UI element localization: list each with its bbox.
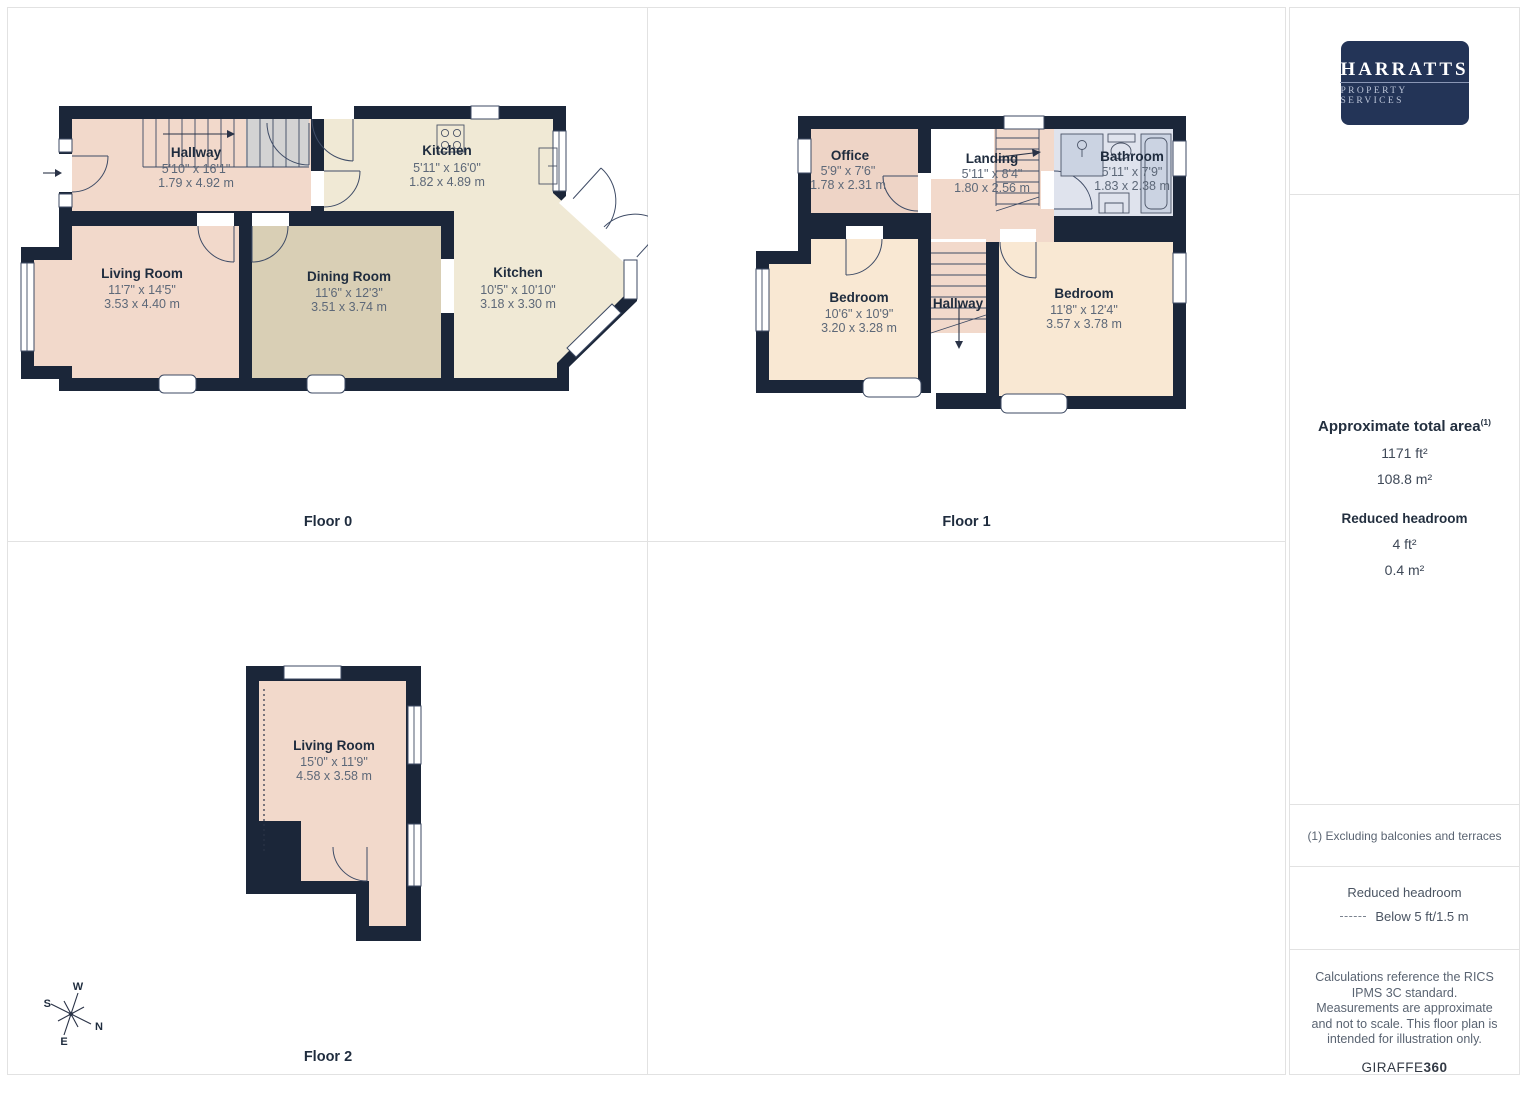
compass: W S N E bbox=[44, 981, 103, 1048]
reduced-headroom-ft: 4 ft² bbox=[1290, 536, 1519, 552]
room-dim-ft: 5'9" x 7'6" bbox=[821, 164, 876, 178]
room-label: Living Room bbox=[293, 738, 375, 753]
room-label: Hallway bbox=[171, 145, 222, 160]
total-area-title-text: Approximate total area bbox=[1318, 418, 1481, 435]
room-dim-ft: 5'11" x 16'0" bbox=[413, 161, 481, 175]
compass-east: E bbox=[60, 1036, 67, 1048]
room-dim-m: 1.78 x 2.31 m bbox=[810, 178, 886, 192]
room-dim-m: 1.80 x 2.56 m bbox=[954, 181, 1030, 195]
room-label: Kitchen bbox=[422, 143, 472, 158]
floor-2-plan: Living Room 15'0" x 11'9" 4.58 x 3.58 m … bbox=[8, 542, 648, 1074]
room-dim-m: 1.82 x 4.89 m bbox=[409, 175, 485, 189]
harratts-logo: HARRATTS PROPERTY SERVICES bbox=[1341, 41, 1469, 125]
room-dim-m: 3.18 x 3.30 m bbox=[480, 297, 556, 311]
total-area-title: Approximate total area(1) bbox=[1290, 417, 1519, 435]
dashed-line-icon bbox=[1340, 916, 1366, 917]
floor-0-plan: Hallway 5'10" x 16'1" 1.79 x 4.92 m Kitc… bbox=[8, 8, 648, 542]
area-section: Approximate total area(1) 1171 ft² 108.8… bbox=[1290, 194, 1519, 804]
disclaimer-section: Calculations reference the RICS IPMS 3C … bbox=[1290, 949, 1519, 1107]
disclaimer-text: Calculations reference the RICS IPMS 3C … bbox=[1311, 970, 1499, 1048]
floorplan-page: { "brand": { "logo_line1": "HARRATTS", "… bbox=[0, 0, 1527, 1080]
room-dim-ft: 10'6" x 10'9" bbox=[825, 307, 894, 321]
room-dim-ft: 5'11" x 8'4" bbox=[962, 167, 1023, 181]
footnote-section: (1) Excluding balconies and terraces bbox=[1290, 804, 1519, 866]
room-dim-m: 1.79 x 4.92 m bbox=[158, 176, 234, 190]
room-label: Dining Room bbox=[307, 269, 391, 284]
room-dim-ft: 10'5" x 10'10" bbox=[480, 283, 556, 297]
floor-1-label: Floor 1 bbox=[648, 514, 1285, 534]
room-dim-ft: 15'0" x 11'9" bbox=[300, 755, 368, 769]
floor-0-label: Floor 0 bbox=[8, 514, 648, 534]
room-dim-ft: 11'6" x 12'3" bbox=[315, 286, 383, 300]
room-dim-m: 3.57 x 3.78 m bbox=[1046, 317, 1122, 331]
room-dim-m: 3.53 x 4.40 m bbox=[104, 297, 180, 311]
room-label: Hallway bbox=[933, 296, 984, 311]
floorplan-grid: Hallway 5'10" x 16'1" 1.79 x 4.92 m Kitc… bbox=[7, 7, 1286, 1075]
legend-section: Reduced headroom Below 5 ft/1.5 m bbox=[1290, 866, 1519, 949]
total-area-m: 108.8 m² bbox=[1290, 471, 1519, 487]
logo-section: HARRATTS PROPERTY SERVICES bbox=[1290, 41, 1519, 194]
compass-west: W bbox=[73, 981, 84, 993]
room-label: Bedroom bbox=[829, 290, 888, 305]
legend-title: Reduced headroom bbox=[1290, 885, 1519, 900]
room-label: Office bbox=[831, 148, 870, 163]
room-dim-m: 3.51 x 3.74 m bbox=[311, 300, 387, 314]
total-area-ft: 1171 ft² bbox=[1290, 445, 1519, 461]
room-label: Living Room bbox=[101, 266, 183, 281]
compass-north: N bbox=[95, 1021, 103, 1033]
floor-1-plan: Office 5'9" x 7'6" 1.78 x 2.31 m Landing… bbox=[648, 8, 1285, 542]
room-dim-m: 3.20 x 3.28 m bbox=[821, 321, 897, 335]
room-dim-ft: 11'7" x 14'5" bbox=[108, 283, 176, 297]
room-dim-ft: 5'11" x 7'9" bbox=[1102, 165, 1163, 179]
room-label: Bedroom bbox=[1054, 286, 1113, 301]
watermark-bold: 360 bbox=[1423, 1060, 1447, 1075]
reduced-headroom-title: Reduced headroom bbox=[1290, 511, 1519, 526]
room-dim-ft: 5'10" x 16'1" bbox=[162, 162, 231, 176]
giraffe360-watermark: GIRAFFE360 bbox=[1290, 1060, 1519, 1075]
watermark-regular: GIRAFFE bbox=[1361, 1060, 1423, 1075]
logo-subtitle: PROPERTY SERVICES bbox=[1341, 87, 1469, 106]
room-label: Landing bbox=[966, 151, 1019, 166]
logo-title: HARRATTS bbox=[1340, 60, 1468, 83]
room-dim-m: 1.83 x 2.38 m bbox=[1094, 179, 1170, 193]
legend-label: Below 5 ft/1.5 m bbox=[1375, 909, 1468, 924]
room-dim-m: 4.58 x 3.58 m bbox=[296, 769, 372, 783]
total-area-superscript: (1) bbox=[1481, 417, 1491, 427]
room-label: Bathroom bbox=[1100, 149, 1164, 164]
info-sidebar: HARRATTS PROPERTY SERVICES Approximate t… bbox=[1289, 7, 1520, 1075]
room-dim-ft: 11'8" x 12'4" bbox=[1050, 303, 1118, 317]
compass-south: S bbox=[44, 998, 51, 1010]
reduced-headroom-m: 0.4 m² bbox=[1290, 562, 1519, 578]
room-label: Kitchen bbox=[493, 265, 543, 280]
footnote-text: (1) Excluding balconies and terraces bbox=[1290, 805, 1519, 866]
floor-2-label: Floor 2 bbox=[8, 1049, 648, 1069]
